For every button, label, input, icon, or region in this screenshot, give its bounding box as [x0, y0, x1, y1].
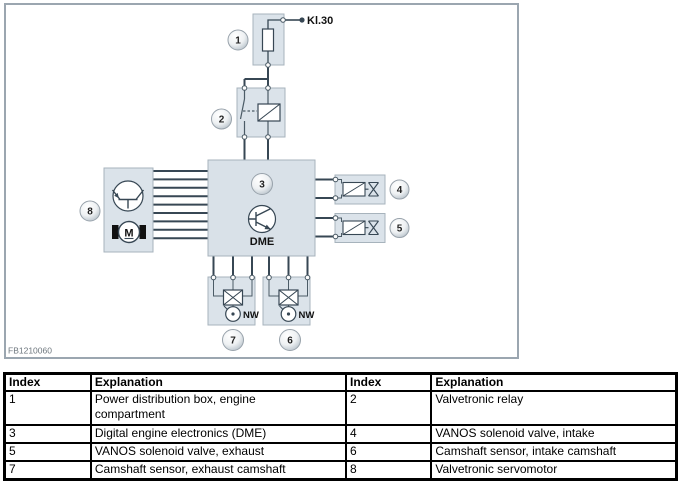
callout-7: 7	[223, 330, 244, 351]
explanation-cell: Valvetronic servomotor	[431, 461, 676, 480]
svg-text:1: 1	[235, 36, 241, 47]
index-cell: 4	[346, 425, 431, 443]
explanation-cell: Camshaft sensor, intake camshaft	[431, 443, 676, 461]
index-header: Index	[346, 374, 431, 392]
terminal-30-label: Kl.30	[307, 15, 333, 27]
legend-table: Index Explanation Index Explanation 1 Po…	[3, 372, 678, 481]
explanation-cell: Valvetronic relay	[431, 391, 676, 425]
explanation-cell: Power distribution box, engine compartme…	[91, 391, 346, 425]
sensor-x-icon	[279, 290, 298, 305]
wiring-diagram: Kl.30 DME	[0, 0, 683, 366]
callout-3: 3	[252, 174, 273, 195]
sensor-x-icon	[224, 290, 243, 305]
index-cell: 3	[5, 425, 91, 443]
explanation-header: Explanation	[91, 374, 346, 392]
vanos-intake-valve-box	[335, 175, 385, 204]
explanation-header: Explanation	[431, 374, 676, 392]
table-row: 1 Power distribution box, engine compart…	[5, 391, 677, 425]
index-cell: 1	[5, 391, 91, 425]
index-cell: 6	[346, 443, 431, 461]
legend-header-row: Index Explanation Index Explanation	[5, 374, 677, 392]
nw-label: NW	[299, 310, 315, 321]
motor-label: M	[124, 228, 133, 240]
index-cell: 5	[5, 443, 91, 461]
callout-5: 5	[390, 219, 409, 238]
solenoid-coil-icon	[343, 221, 365, 235]
index-cell: 2	[346, 391, 431, 425]
index-header: Index	[5, 374, 91, 392]
explanation-cell: VANOS solenoid valve, exhaust	[91, 443, 346, 461]
table-row: 5 VANOS solenoid valve, exhaust 6 Camsha…	[5, 443, 677, 461]
dme-label: DME	[250, 236, 274, 248]
camshaft-sensor-intake-box: NW	[263, 277, 314, 325]
svg-text:2: 2	[219, 115, 225, 126]
callout-1: 1	[228, 30, 248, 50]
table-row: 7 Camshaft sensor, exhaust camshaft 8 Va…	[5, 461, 677, 480]
index-cell: 8	[346, 461, 431, 480]
callout-6: 6	[280, 330, 301, 351]
svg-text:4: 4	[397, 185, 403, 196]
index-cell: 7	[5, 461, 91, 480]
page: Kl.30 DME	[0, 0, 683, 489]
explanation-cell: Camshaft sensor, exhaust camshaft	[91, 461, 346, 480]
svg-text:6: 6	[287, 336, 293, 347]
nw-label: NW	[243, 310, 259, 321]
arrow-dot-icon	[299, 17, 304, 22]
solenoid-coil-icon	[343, 183, 365, 197]
power-distribution-box	[253, 14, 284, 65]
callout-2: 2	[212, 109, 232, 129]
explanation-cell: VANOS solenoid valve, intake	[431, 425, 676, 443]
explanation-cell: Digital engine electronics (DME)	[91, 425, 346, 443]
svg-text:8: 8	[87, 207, 93, 218]
svg-text:7: 7	[230, 336, 236, 347]
callout-8: 8	[80, 201, 100, 221]
servomotor-box: M	[104, 168, 153, 252]
servo-transistor-icon	[113, 181, 144, 211]
valvetronic-relay-box	[237, 88, 285, 137]
vanos-exhaust-valve-box	[335, 214, 385, 243]
svg-text:5: 5	[397, 224, 403, 235]
camshaft-sensor-exhaust-box: NW	[208, 277, 259, 325]
table-row: 3 Digital engine electronics (DME) 4 VAN…	[5, 425, 677, 443]
callout-4: 4	[390, 180, 409, 199]
svg-text:3: 3	[259, 180, 265, 191]
transistor-icon	[249, 206, 276, 233]
figure-id: FB1210060	[8, 346, 52, 356]
fuse-icon	[263, 29, 274, 51]
